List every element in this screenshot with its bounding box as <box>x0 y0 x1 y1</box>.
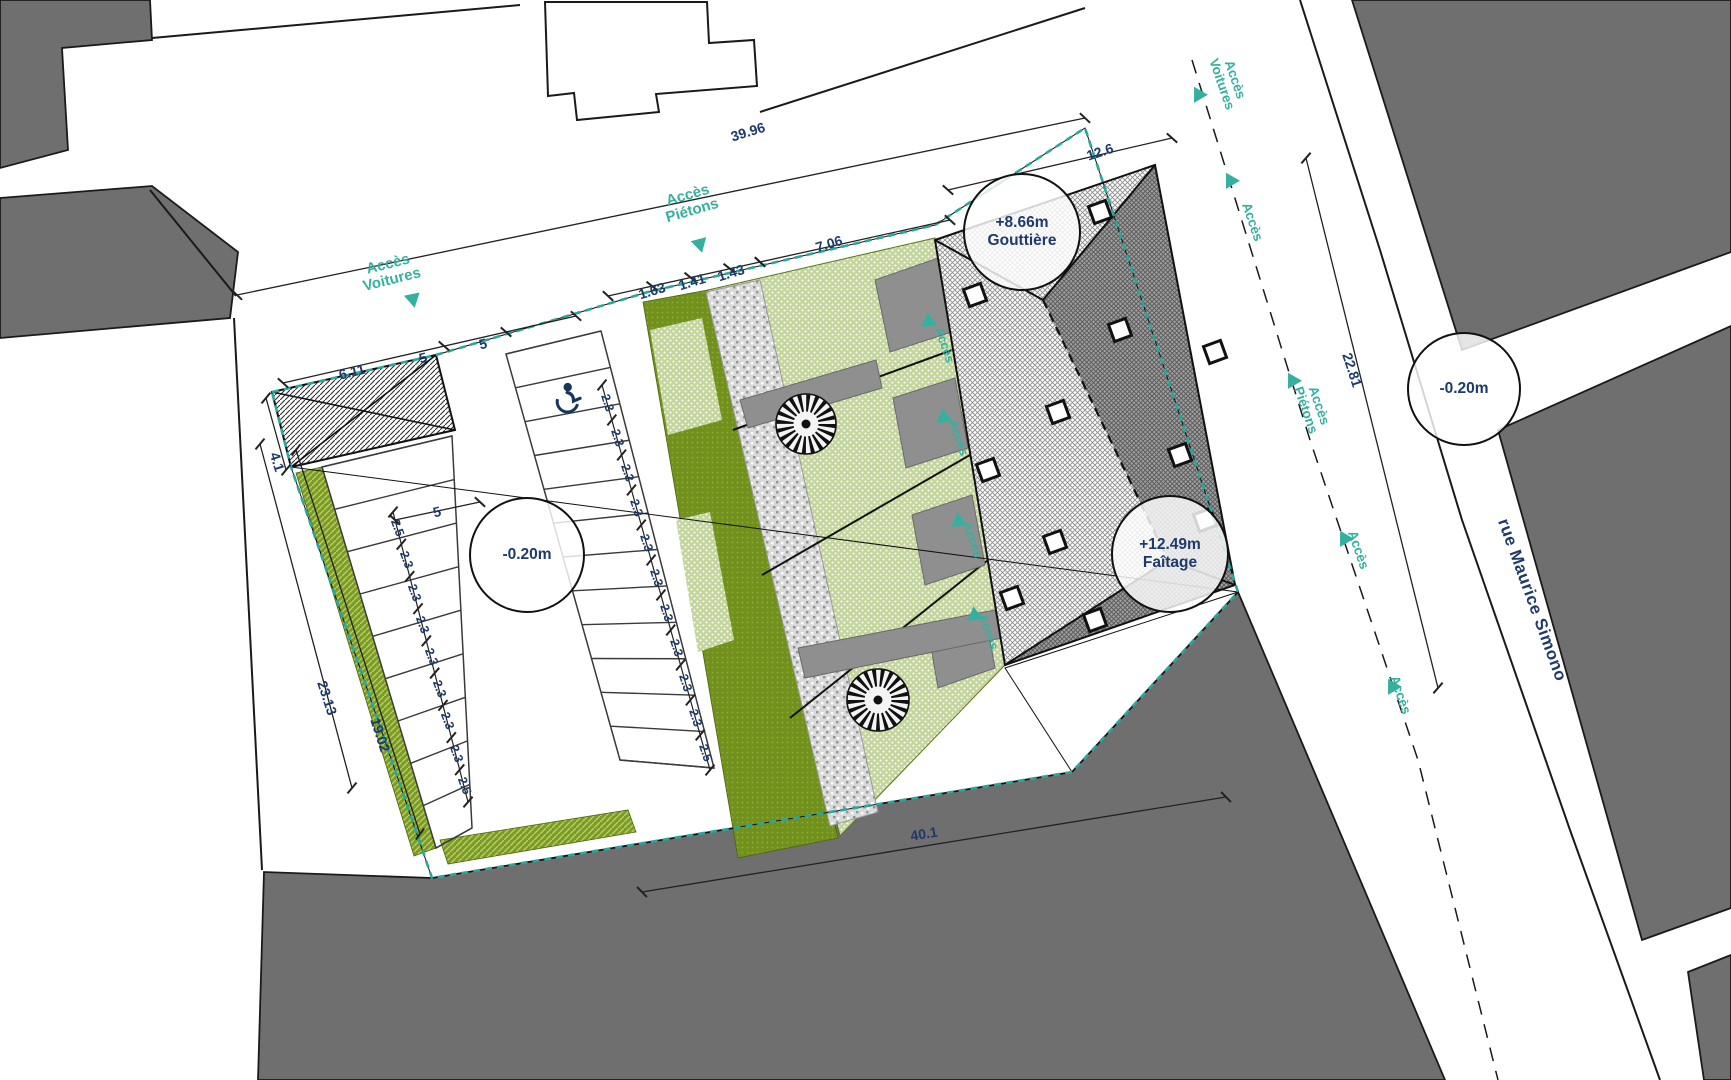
access-arrow-icon <box>1187 87 1208 107</box>
roof-window <box>1083 608 1106 631</box>
plan-canvas <box>0 0 1731 1080</box>
wheelchair-icon <box>553 381 583 415</box>
roof-window <box>963 283 986 306</box>
roof-window <box>1203 340 1226 363</box>
spiral-stair-2 <box>847 669 909 731</box>
site-plan-drawing: 39.9612.61.631.411.437.066.115554.122.81… <box>0 0 1731 1080</box>
roof-window <box>1168 443 1191 466</box>
access-arrow-icon <box>1281 373 1302 393</box>
access-arrow-icon <box>691 237 710 255</box>
access-arrow-icon <box>1381 679 1402 699</box>
roof-window <box>1108 318 1131 341</box>
spiral-stair-1 <box>776 394 836 454</box>
roof-window <box>1000 586 1023 609</box>
access-arrow-icon <box>404 292 423 309</box>
roof-window <box>1046 400 1069 423</box>
roof-window <box>1088 200 1111 223</box>
access-arrow-icon <box>1219 173 1240 193</box>
access-arrow-icon <box>1333 531 1354 551</box>
roof-window <box>976 458 999 481</box>
roof-window <box>1043 530 1066 553</box>
